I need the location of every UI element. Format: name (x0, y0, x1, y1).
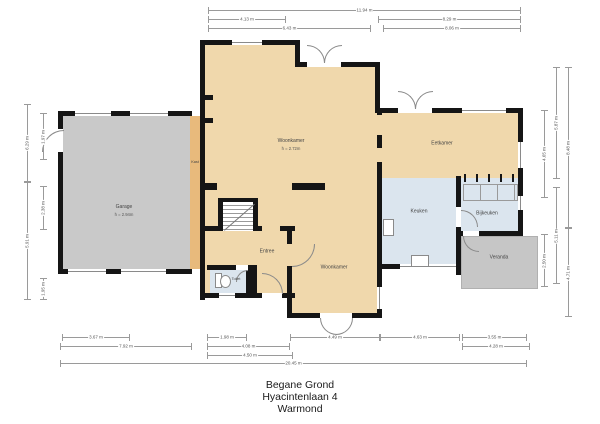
dimension-left-inner-lower: 1.95 m (40, 278, 47, 300)
cooktop (383, 219, 394, 236)
dimension-top-right2: 8.06 m (383, 25, 521, 32)
wall-stub-mid (292, 183, 325, 190)
dimension-bottom-veranda2: 4.28 m (462, 343, 530, 350)
dimension-bottom-garage-door: 3.67 m (62, 334, 130, 341)
dimension-right-mid-lower: 5.11 m (553, 187, 560, 284)
street-address: Hyacintenlaan 4 (0, 391, 600, 403)
dimension-top-overall: 11.94 m (208, 7, 521, 14)
door-arc-eetkamer-right (415, 91, 433, 109)
dimension-bottom-entree2: 4.50 m (207, 352, 293, 359)
floorplan-canvas: Woonkamerh = 2.72m Garageh = 2.94m Kast … (0, 0, 600, 424)
dimension-bottom-woonkamer2: 4.49 m (290, 334, 380, 341)
dimension-bottom-toilet: 1.98 m (207, 334, 247, 341)
room-label-veranda: Veranda (490, 254, 509, 262)
window-woonkamer2-right (377, 287, 382, 309)
window-garage-top-1 (75, 111, 111, 116)
wall-mid-seg2 (377, 135, 382, 148)
room-label-keuken: Keuken (411, 208, 428, 216)
room-name: Garage (116, 204, 133, 210)
wall-woonkamer2-left-b (287, 266, 292, 318)
wall-nib-lower (205, 118, 213, 123)
door-arc-woonkamer2-right (336, 318, 353, 335)
room-label-toilet: Toilet (232, 277, 241, 283)
dimension-right-inner-upper: 4.65 m (541, 110, 548, 198)
window-garage-top-2 (130, 111, 168, 116)
dimension-top-right: 8.29 m (378, 16, 521, 23)
window-woonkamer-top (232, 40, 262, 45)
dimension-right-mid-upper: 5.87 m (553, 67, 560, 179)
wall-stub-left (200, 183, 217, 190)
window-eetkamer-right (518, 142, 523, 168)
room-woonkamer-floor-mid (292, 67, 377, 313)
title-block: Begane Grond Hyacintenlaan 4 Warmond (0, 379, 600, 415)
room-label-entree: Entree (260, 248, 275, 256)
dimension-bottom-entree: 4.08 m (207, 343, 290, 350)
window-toilet-bottom (219, 293, 235, 298)
room-name: Woonkamer (278, 138, 305, 144)
wall-house-left (200, 40, 205, 300)
dimension-right-outer-upper: 8.48 m (565, 67, 572, 228)
wall-veranda-left (456, 236, 461, 275)
wall-entree-top-b (280, 226, 295, 231)
room-garage-floor (63, 116, 190, 269)
room-label-woonkamer-bottom: Woonkamer (321, 264, 348, 272)
room-kast-floor (190, 116, 200, 269)
dimension-bottom-veranda: 3.55 m (462, 334, 527, 341)
city-name: Warmond (0, 403, 600, 415)
bijkeuken-counter (463, 184, 518, 201)
garage-door-1 (68, 269, 106, 274)
floor-name: Begane Grond (0, 379, 600, 391)
room-woonkamer-floor-left (205, 45, 297, 293)
dimension-left-inner-upper: 1.97 m (40, 113, 47, 160)
radiator-eetkamer (464, 174, 516, 182)
wall-mid-seg3 (377, 162, 382, 183)
room-label-bijkeuken: Bijkeuken (476, 210, 498, 218)
room-label-kast: Kast (191, 160, 199, 166)
room-height: h = 2.94m (115, 212, 134, 218)
door-arc-terrace-right (324, 45, 342, 63)
door-arc-eetkamer-left (398, 91, 416, 109)
door-arc-woonkamer2-left (320, 318, 337, 335)
kitchen-sink (411, 255, 429, 267)
dimension-left-inner-mid: 2.38 m (40, 186, 47, 230)
wall-house-right (518, 108, 523, 236)
door-arc-terrace-left (307, 45, 325, 63)
dimension-bottom-garage: 7.92 m (60, 343, 192, 350)
dimension-bottom-keuken: 4.63 m (380, 334, 460, 341)
dimension-right-inner-lower: 2.50 m (541, 234, 548, 287)
dimension-top-left2: 6.43 m (208, 25, 371, 32)
room-height: h = 2.72m (278, 146, 305, 152)
toilet-bowl (220, 275, 231, 288)
wall-nib-upper (205, 95, 213, 100)
garage-door-2 (121, 269, 166, 274)
window-bijkeuken-right (518, 196, 523, 210)
wall-eetkamer-left-upper (375, 62, 380, 113)
dimension-left-lower: 5.91 m (24, 182, 31, 300)
wall-keuken-bijkeuken-a (456, 176, 461, 207)
room-label-eetkamer: Eetkamer (431, 140, 452, 148)
dimension-top-left: 4.13 m (208, 16, 286, 23)
room-label-garage: Garageh = 2.94m (115, 204, 134, 218)
dimension-left-upper: 6.29 m (24, 104, 31, 182)
room-label-woonkamer-top: Woonkamerh = 2.72m (278, 138, 305, 152)
dimension-bottom-overall: 20.45 m (60, 360, 527, 367)
dimension-right-outer-lower: 4.71 m (565, 228, 572, 317)
wall-mid-seg1 (377, 108, 382, 115)
window-eetkamer-top (462, 108, 506, 113)
